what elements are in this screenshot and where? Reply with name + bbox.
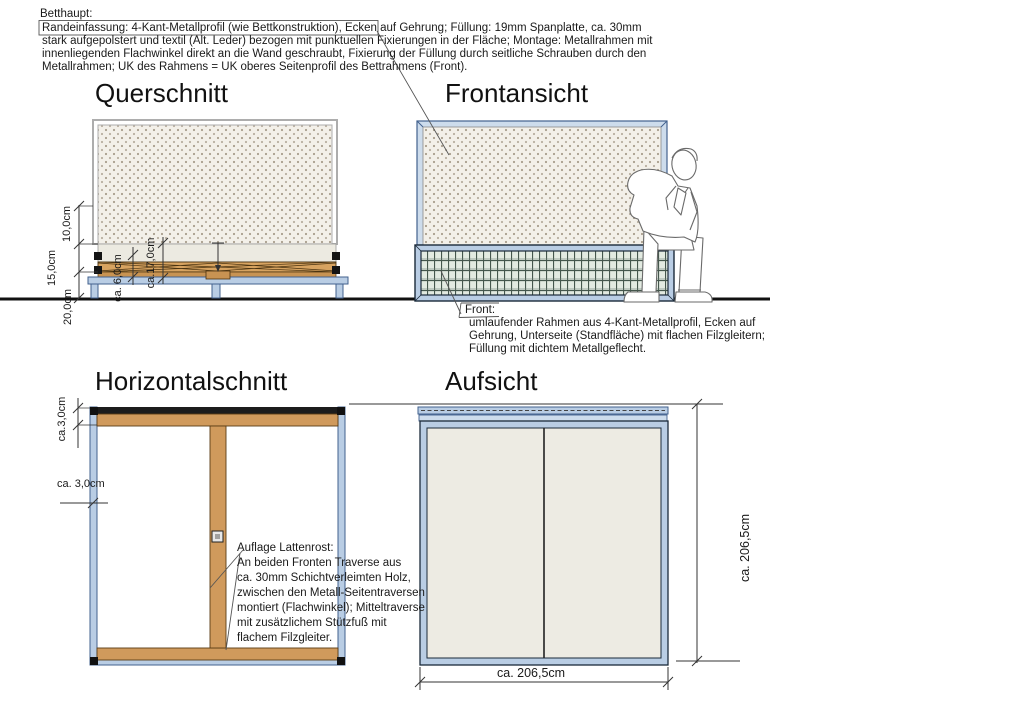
person-front-shoe: [624, 292, 659, 302]
betthaupt-note-line4: Metallrahmen; UK des Rahmens = UK oberes…: [42, 61, 467, 74]
dim-label-10cm: 10,0cm: [61, 206, 73, 242]
betthaupt-note-line2: stark aufgepolstert und textil (Alt. Led…: [42, 35, 652, 48]
auflage-note-line3: zwischen den Metall-Seitentraversen: [237, 586, 425, 601]
dim-label-20cm: 20,0cm: [62, 289, 74, 325]
querschnitt-title: Querschnitt: [95, 78, 228, 109]
auflage-note-line5: mit zusätzlichem Stützfuß mit: [237, 616, 425, 631]
front-note: Front: umlaufender Rahmen aus 4-Kant-Met…: [465, 304, 765, 356]
front-note-line2: Gehrung, Unterseite (Standfläche) mit fl…: [469, 330, 765, 343]
horizontalschnitt-title: Horizontalschnitt: [95, 366, 287, 397]
auflage-note-label: Auflage Lattenrost:: [237, 541, 425, 556]
betthaupt-note-line3: innenliegenden Flachwinkel direkt an die…: [42, 48, 646, 61]
technical-drawing-sheet: Betthaupt: Randeinfassung: 4-Kant-Metall…: [0, 0, 1024, 725]
dim-label-width-206cm: ca. 206,5cm: [497, 666, 565, 680]
dim-label-3cm-side: ca. 3,0cm: [57, 478, 105, 490]
auflage-note: Auflage Lattenrost: An beiden Fronten Tr…: [237, 541, 425, 646]
aufsicht-title: Aufsicht: [445, 366, 538, 397]
aufsicht-drawing: [418, 407, 668, 665]
betthaupt-note-line1: Randeinfassung: 4-Kant-Metallprofil (wie…: [42, 22, 642, 35]
dim-label-3cm-top: ca.3,0cm: [56, 397, 68, 442]
frontansicht-title: Frontansicht: [445, 78, 588, 109]
person-rear-shoe: [675, 292, 712, 302]
dim-label-17cm: ca.17,0cm: [145, 238, 157, 289]
front-note-label: Front:: [465, 304, 765, 317]
front-note-line1: umlaufender Rahmen aus 4-Kant-Metallprof…: [469, 317, 765, 330]
dim-label-15cm: 15,0cm: [46, 250, 58, 286]
dim-label-6cm: ca. 6,0cm: [112, 254, 124, 302]
betthaupt-note-title: Betthaupt:: [40, 8, 92, 21]
auflage-note-line1: An beiden Fronten Traverse aus: [237, 556, 425, 571]
betthaupt-line1-rest: , Ecken auf Gehrung; Füllung: 19mm Spanp…: [339, 22, 642, 34]
auflage-note-line6: flachem Filzgleiter.: [237, 631, 425, 646]
front-note-line3: Füllung mit dichtem Metallgeflecht.: [469, 343, 765, 356]
betthaupt-boxed-text: Randeinfassung: 4-Kant-Metallprofil (wie…: [42, 22, 339, 34]
person-head: [669, 148, 699, 182]
auflage-note-line2: ca. 30mm Schichtverleimten Holz,: [237, 571, 425, 586]
dim-label-height-206cm: ca. 206,5cm: [738, 514, 752, 582]
auflage-note-line4: montiert (Flachwinkel); Mitteltraverse: [237, 601, 425, 616]
